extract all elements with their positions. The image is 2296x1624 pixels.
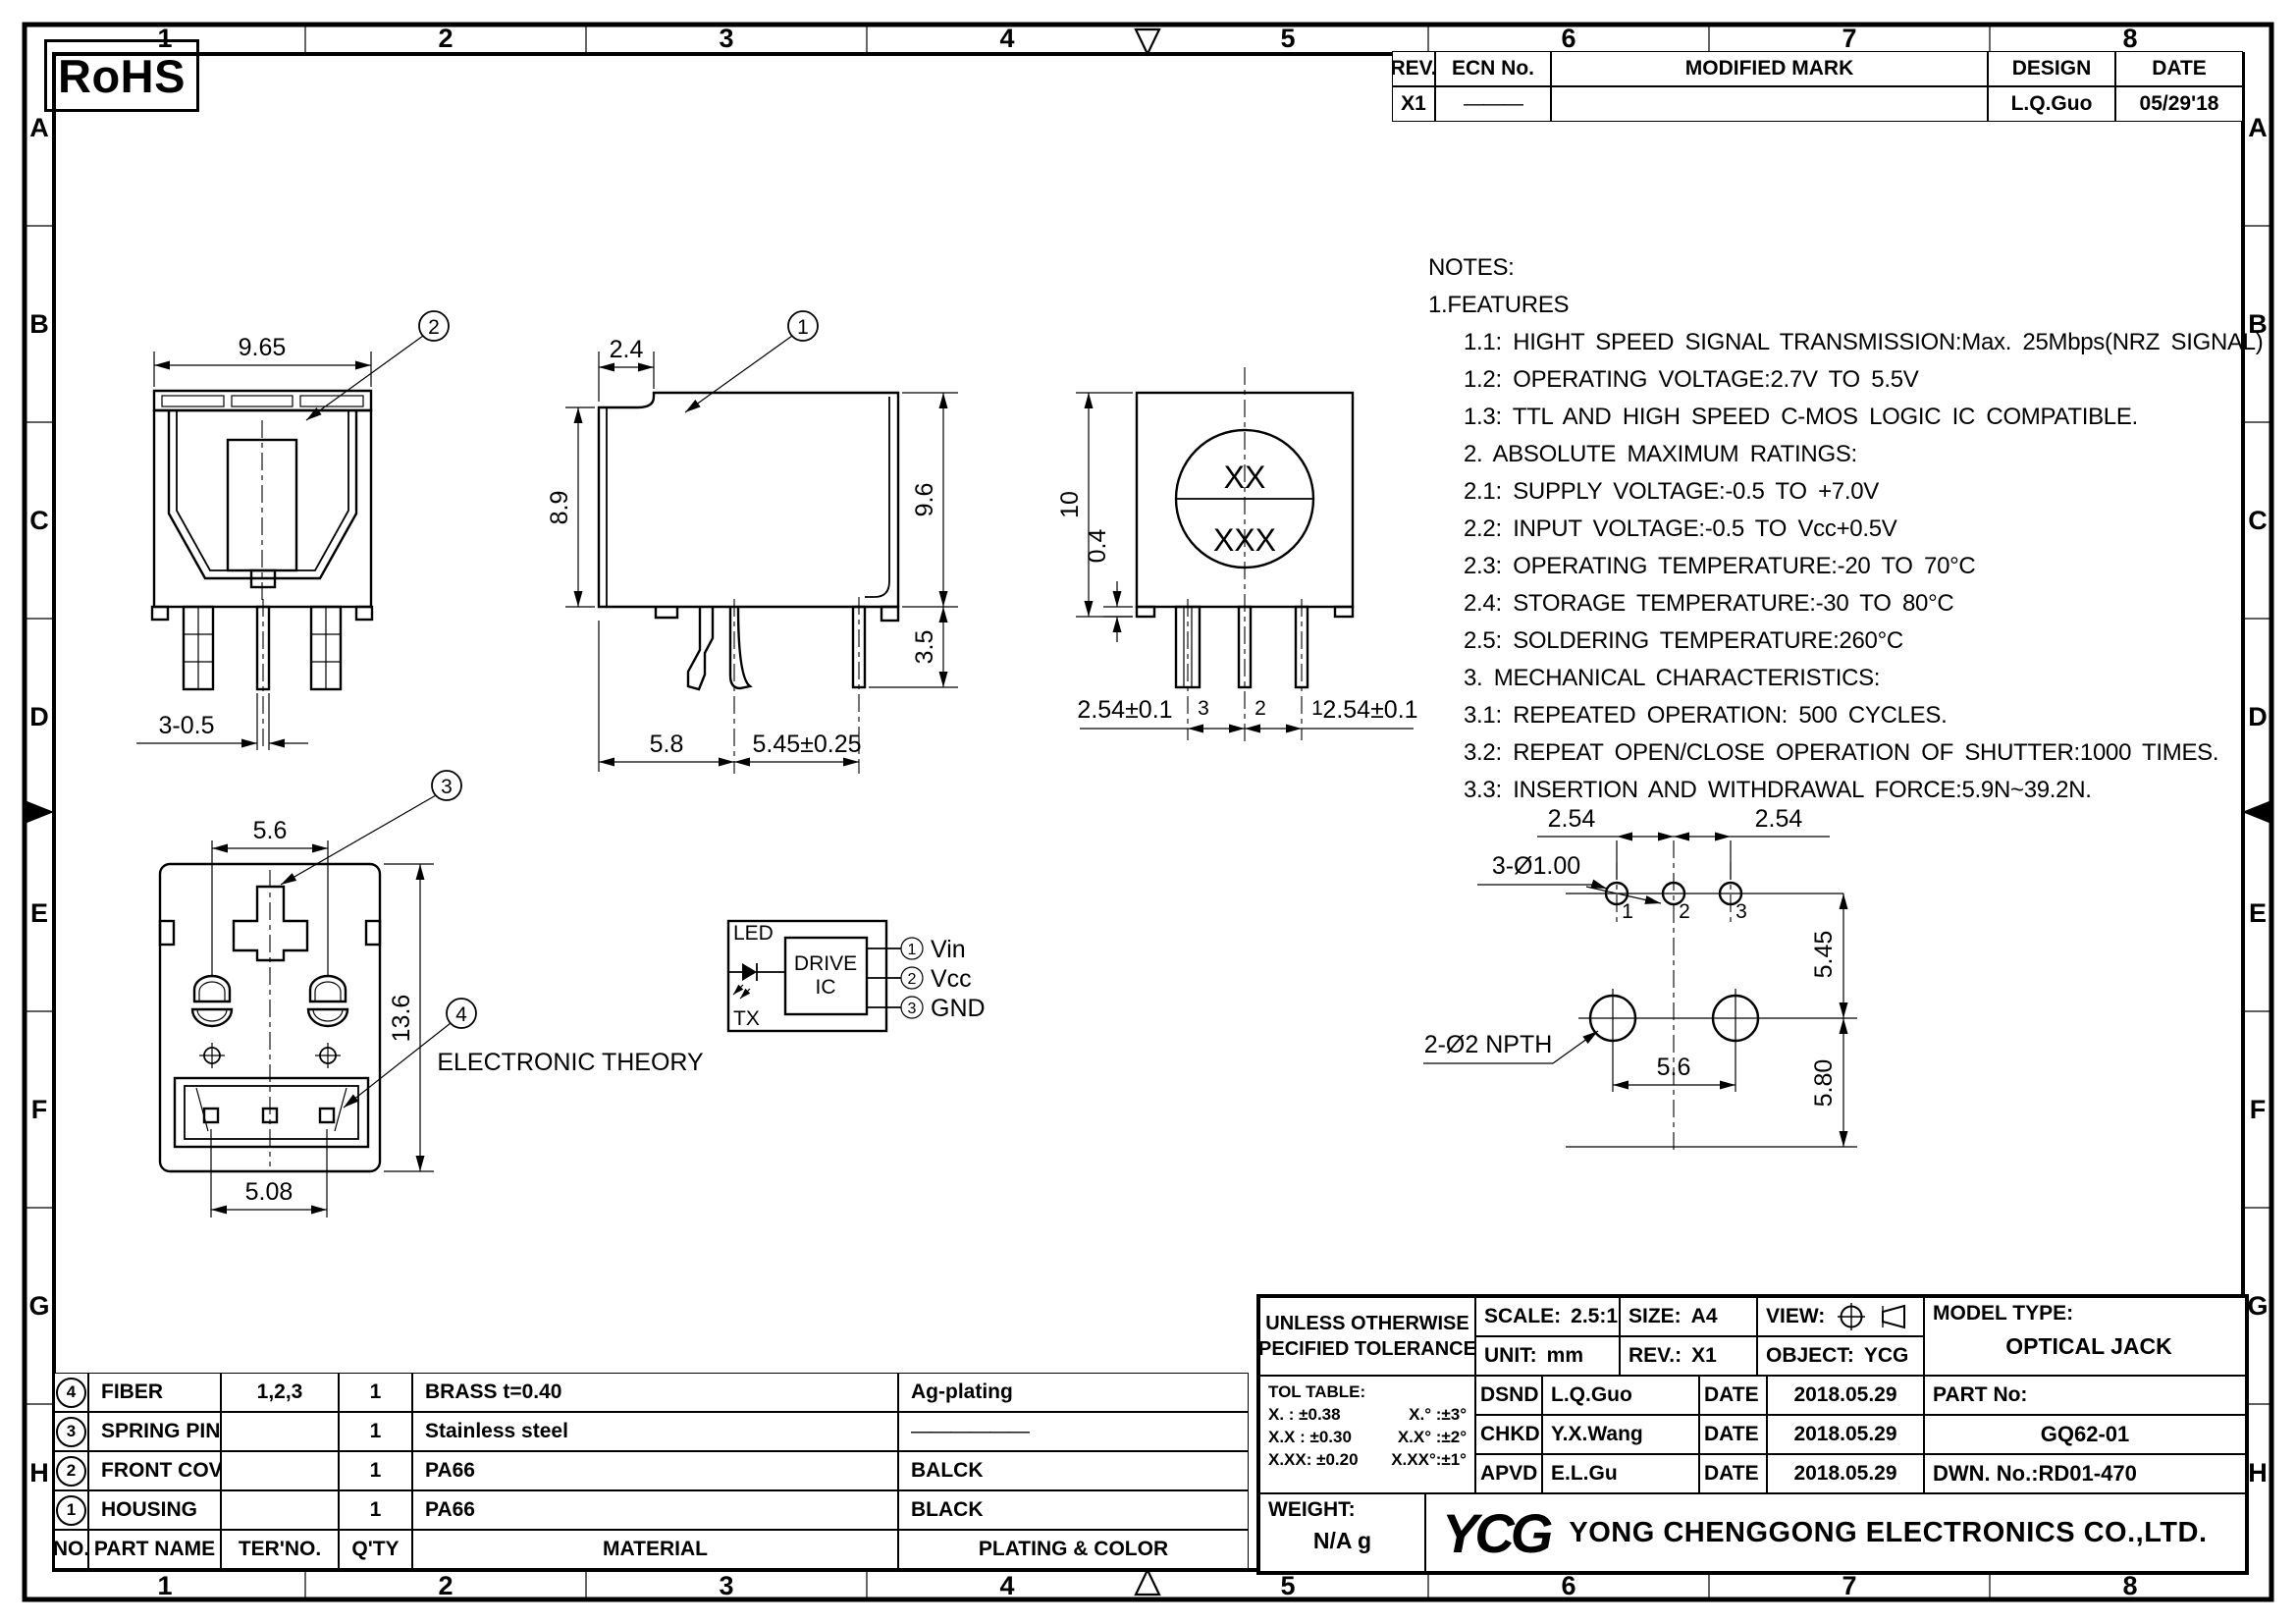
part-material: BRASS t=0.40 (412, 1373, 898, 1412)
size-cell: SIZE: A4 (1620, 1297, 1757, 1336)
dim-rear-standoff: 0.4 (1084, 529, 1111, 564)
rev-value-mark (1551, 86, 1988, 122)
zone-label: 8 (2122, 1571, 2137, 1600)
part-qty: 1 (339, 1412, 412, 1451)
rev-label: REV.: (1629, 1344, 1682, 1368)
apvd-name: E.L.Gu (1542, 1454, 1699, 1493)
note-line: 2.2: INPUT VOLTAGE:-0.5 TO Vcc+0.5V (1428, 511, 2263, 548)
part-name: FIBER (88, 1373, 221, 1412)
part-balloon: 2 (56, 1456, 86, 1487)
hole-label-2: 2 (1679, 900, 1690, 923)
rev-header-date: DATE (2115, 51, 2243, 86)
zone-label: 5 (1280, 24, 1295, 53)
zone-label: B (29, 309, 49, 339)
tol-linear: X.XX: ±0.20 (1268, 1448, 1359, 1471)
drawing-sheet: 1 2 3 4 5 6 7 8 1 2 3 4 5 6 7 8 A B C D … (0, 0, 2296, 1624)
pcb-hole-pattern: 2.54 2.54 3-Ø1.00 1 2 3 5.45 2-Ø2 NPTH 5… (1423, 805, 1857, 1151)
balloon-2-label: 2 (428, 316, 440, 339)
center-mark-top-icon (1136, 29, 1159, 54)
parts-table: 4 FIBER 1,2,3 1 BRASS t=0.40 Ag-plating … (54, 1373, 1249, 1569)
part-material: Stainless steel (412, 1412, 898, 1451)
part-material: PA66 (412, 1451, 898, 1490)
dim-side-body-height: 8.9 (546, 491, 573, 525)
balloon-4-label: 4 (455, 1003, 467, 1026)
zone-label: G (28, 1291, 49, 1321)
zone-label: H (2248, 1458, 2268, 1488)
zone-label: 1 (157, 1571, 172, 1600)
zone-label: A (2248, 113, 2268, 142)
zone-label: E (2249, 898, 2267, 928)
rohs-mark: RoHS (44, 39, 199, 112)
note-line: 2.5: SOLDERING TEMPERATURE:260°C (1428, 623, 2263, 660)
unit-cell: UNIT: mm (1475, 1336, 1620, 1376)
dsnd-role: DSND (1475, 1376, 1542, 1415)
drive-ic-label-line1: DRIVE (794, 952, 857, 975)
dim-pcb-hole-span: 5.6 (1657, 1054, 1691, 1081)
rev-cell: REV.: X1 (1620, 1336, 1757, 1376)
pin-number-3: 3 (908, 1001, 917, 1017)
note-line: 1.3: TTL AND HIGH SPEED C-MOS LOGIC IC C… (1428, 399, 2263, 436)
zone-label: 5 (1280, 1571, 1295, 1600)
label-big-holes: 2-Ø2 NPTH (1424, 1031, 1553, 1058)
weight-label: WEIGHT: (1268, 1498, 1356, 1522)
dim-rear-pitch-left: 2.54±0.1 (1077, 696, 1172, 724)
pin-number-1: 1 (908, 942, 917, 958)
note-line: 3.1: REPEATED OPERATION: 500 CYCLES. (1428, 697, 2263, 734)
pin-number-2: 2 (908, 971, 917, 988)
weight-value: N/A g (1313, 1528, 1371, 1554)
pin-name-vcc: Vcc (931, 965, 972, 993)
part-terno (221, 1412, 339, 1451)
hole-label-1: 1 (1622, 900, 1633, 923)
zone-label: 6 (1561, 1571, 1575, 1600)
tol-linear: X. : ±0.38 (1268, 1403, 1341, 1426)
note-line: 1.1: HIGHT SPEED SIGNAL TRANSMISSION:Max… (1428, 324, 2263, 361)
zone-label: 3 (719, 24, 733, 53)
part-row-no: 4 (54, 1373, 88, 1412)
part-terno (221, 1490, 339, 1530)
model-type-value: OPTICAL JACK (2005, 1333, 2172, 1360)
balloon-1-label: 1 (797, 316, 809, 339)
dim-pcb-pitch-left: 2.54 (1548, 805, 1596, 833)
model-type-cell: MODEL TYPE: OPTICAL JACK (1924, 1297, 2246, 1376)
part-row-no: 3 (54, 1412, 88, 1451)
company-name: YONG CHENGGONG ELECTRONICS CO.,LTD. (1569, 1517, 2207, 1549)
parts-header-part: PART NAME (88, 1530, 221, 1569)
zone-label: 4 (999, 24, 1014, 53)
projection-cone-icon (1872, 1302, 1907, 1331)
note-line: 2.4: STORAGE TEMPERATURE:-30 TO 80°C (1428, 585, 2263, 623)
part-plating: Ag-plating (898, 1373, 1249, 1412)
zone-label: F (31, 1095, 48, 1124)
part-material: PA66 (412, 1490, 898, 1530)
part-qty: 1 (339, 1451, 412, 1490)
unit-label: UNIT: (1484, 1344, 1537, 1368)
view-front: 9.65 2 3-0.5 (136, 311, 449, 751)
part-row-no: 2 (54, 1451, 88, 1490)
part-balloon: 1 (56, 1495, 86, 1526)
dim-side-pin-length: 3.5 (911, 630, 938, 665)
zone-label: F (2250, 1095, 2267, 1124)
chkd-date-label: DATE (1699, 1415, 1767, 1454)
tol-linear: X.X : ±0.30 (1268, 1426, 1352, 1448)
dwn-no: DWN. No.:RD01-470 (1924, 1454, 2246, 1493)
ycg-logo: YCG (1442, 1501, 1549, 1565)
dsnd-date-label: DATE (1699, 1376, 1767, 1415)
rev-header-ecn: ECN No. (1435, 51, 1551, 86)
tol-angular: X.X° :±2° (1398, 1426, 1467, 1448)
chkd-name: Y.X.Wang (1542, 1415, 1699, 1454)
dim-pcb-vertical-top: 5.45 (1810, 931, 1838, 979)
parts-header-plating: PLATING & COLOR (898, 1530, 1249, 1569)
note-line: 2.3: OPERATING TEMPERATURE:-20 TO 70°C (1428, 548, 2263, 585)
view-side: 2.4 1 8.9 9.6 3.5 5.8 5.45±0.25 (546, 311, 958, 774)
rev-value-ecn: ——— (1464, 92, 1522, 116)
drive-ic-label-line2: IC (816, 976, 836, 999)
hole-label-3: 3 (1735, 900, 1747, 923)
pin-label-3: 3 (1198, 697, 1209, 720)
part-no-value: GQ62-01 (1924, 1415, 2246, 1454)
dim-pcb-pitch-right: 2.54 (1755, 805, 1803, 833)
note-line: NOTES: (1428, 249, 2263, 287)
center-mark-left-icon (25, 800, 54, 824)
dim-bottom-height: 13.6 (388, 995, 415, 1043)
rev-value-rev: X1 (1392, 86, 1435, 122)
dim-rear-height: 10 (1056, 491, 1084, 518)
center-mark-bottom-icon (1136, 1570, 1159, 1595)
unit-value: mm (1547, 1344, 1583, 1368)
pin-name-gnd: GND (931, 995, 986, 1022)
dim-bottom-top: 5.6 (253, 817, 288, 844)
zone-label: 6 (1561, 24, 1575, 53)
tolerance-note-line1: UNLESS OTHERWISE (1265, 1311, 1468, 1336)
title-block: UNLESS OTHERWISE SPECIFIED TOLERANCES SC… (1256, 1294, 2249, 1575)
zone-label: E (30, 898, 48, 928)
part-terno: 1,2,3 (221, 1373, 339, 1412)
tol-angular: X.° :±3° (1409, 1403, 1467, 1426)
dim-side-right-span: 5.45±0.25 (752, 731, 861, 758)
parts-header-material: MATERIAL (412, 1530, 898, 1569)
part-plating: —————— (911, 1420, 1029, 1443)
part-balloon: 4 (56, 1378, 86, 1408)
note-line: 3.2: REPEAT OPEN/CLOSE OPERATION OF SHUT… (1428, 734, 2263, 772)
rev-value-date: 05/29'18 (2115, 86, 2243, 122)
revision-table: REV. ECN No. MODIFIED MARK DESIGN DATE X… (1392, 51, 2243, 122)
dim-bottom-bottom: 5.08 (245, 1178, 294, 1206)
part-no-label: PART No: (1924, 1376, 2246, 1415)
rev-header-rev: REV. (1392, 51, 1435, 86)
note-line: 3. MECHANICAL CHARACTERISTICS: (1428, 660, 2263, 697)
apvd-date: 2018.05.29 (1767, 1454, 1924, 1493)
rev-header-design: DESIGN (1988, 51, 2115, 86)
view-rear: XX XXX 10 0.4 2.54±0.1 2.54±0.1 3 2 1 (1056, 367, 1418, 742)
pin-name-vin: Vin (931, 936, 966, 963)
label-small-holes: 3-Ø1.00 (1492, 852, 1580, 880)
chkd-role: CHKD (1475, 1415, 1542, 1454)
zone-label: H (29, 1458, 49, 1488)
model-type-label: MODEL TYPE: (1933, 1302, 2245, 1326)
dim-side-total-height: 9.6 (911, 483, 938, 517)
part-plating: BLACK (898, 1490, 1249, 1530)
dim-front-width: 9.65 (239, 334, 287, 361)
part-qty: 1 (339, 1373, 412, 1412)
zone-label: 2 (438, 24, 453, 53)
object-label: OBJECT: (1766, 1344, 1854, 1368)
view-label: VIEW: (1766, 1305, 1825, 1328)
zone-label: G (2247, 1291, 2268, 1321)
date-code-mark-line2: XXX (1213, 522, 1276, 558)
rev-value: X1 (1691, 1344, 1717, 1368)
zone-label: D (29, 702, 49, 731)
date-code-mark-line1: XX (1224, 460, 1266, 495)
dsnd-date: 2018.05.29 (1767, 1376, 1924, 1415)
note-line: 1.2: OPERATING VOLTAGE:2.7V TO 5.5V (1428, 361, 2263, 399)
part-name: SPRING PIN (88, 1412, 221, 1451)
note-line: 3.3: INSERTION AND WITHDRAWAL FORCE:5.9N… (1428, 772, 2263, 809)
parts-header-ter: TER'NO. (221, 1530, 339, 1569)
scale-label: SCALE: (1484, 1305, 1561, 1328)
zone-label: 7 (1842, 1571, 1856, 1600)
dim-side-notch: 2.4 (610, 336, 644, 363)
note-line: 2. ABSOLUTE MAXIMUM RATINGS: (1428, 436, 2263, 473)
part-name: HOUSING (88, 1490, 221, 1530)
theory-caption: ELECTRONIC THEORY (437, 1049, 704, 1076)
scale-value: 2.5:1 (1571, 1305, 1618, 1328)
pin-label-1: 1 (1311, 697, 1323, 720)
part-row-no: 1 (54, 1490, 88, 1530)
zone-label: 4 (999, 1571, 1014, 1600)
object-value: YCG (1864, 1344, 1909, 1368)
view-bottom: 5.6 13.6 5.08 3 4 (160, 771, 476, 1218)
note-line: 2.1: SUPPLY VOLTAGE:-0.5 TO +7.0V (1428, 473, 2263, 511)
part-balloon: 3 (56, 1417, 86, 1447)
chkd-date: 2018.05.29 (1767, 1415, 1924, 1454)
apvd-role: APVD (1475, 1454, 1542, 1493)
dim-pcb-vertical-bottom: 5.80 (1810, 1059, 1838, 1108)
size-value: A4 (1691, 1305, 1718, 1328)
dsnd-name: L.Q.Guo (1542, 1376, 1699, 1415)
view-cell: VIEW: (1757, 1297, 1924, 1336)
note-line: 1.FEATURES (1428, 287, 2263, 324)
electronic-theory-diagram: LED TX DRIVE IC 1 2 3 Vin Vcc GND ELECTR… (437, 921, 985, 1076)
notes-block: NOTES: 1.FEATURES 1.1: HIGHT SPEED SIGNA… (1428, 249, 2263, 809)
apvd-date-label: DATE (1699, 1454, 1767, 1493)
company-cell: YCG YONG CHENGGONG ELECTRONICS CO.,LTD. (1425, 1493, 2246, 1572)
pin-label-2: 2 (1255, 697, 1266, 720)
rev-value-design: L.Q.Guo (1988, 86, 2115, 122)
parts-header-no: NO. (54, 1530, 88, 1569)
parts-header-qty: Q'TY (339, 1530, 412, 1569)
rev-header-mark: MODIFIED MARK (1551, 51, 1988, 86)
dim-side-left-span: 5.8 (650, 731, 684, 758)
weight-cell: WEIGHT: N/A g (1259, 1493, 1425, 1572)
rohs-label: RoHS (58, 49, 186, 103)
tol-table-title: TOL TABLE: (1268, 1380, 1467, 1403)
tolerance-note: UNLESS OTHERWISE SPECIFIED TOLERANCES (1259, 1297, 1475, 1376)
projection-target-icon (1835, 1302, 1868, 1331)
dim-front-pin: 3-0.5 (159, 712, 215, 739)
part-name: FRONT COVER (88, 1451, 221, 1490)
led-label: LED (733, 922, 774, 945)
tolerance-table: TOL TABLE: X. : ±0.38X.° :±3° X.X : ±0.3… (1259, 1376, 1475, 1493)
dim-rear-pitch-right: 2.54±0.1 (1322, 696, 1417, 724)
scale-cell: SCALE: 2.5:1 (1475, 1297, 1620, 1336)
balloon-3-label: 3 (441, 776, 453, 798)
led-diode-icon (742, 963, 757, 981)
object-cell: OBJECT: YCG (1757, 1336, 1924, 1376)
tol-angular: X.XX°:±1° (1391, 1448, 1467, 1471)
zone-label: A (29, 113, 49, 142)
part-plating: BALCK (898, 1451, 1249, 1490)
part-qty: 1 (339, 1490, 412, 1530)
tx-label: TX (733, 1007, 760, 1030)
zone-label: 2 (438, 1571, 453, 1600)
size-label: SIZE: (1629, 1305, 1682, 1328)
tolerance-note-line2: SPECIFIED TOLERANCES (1259, 1336, 1475, 1362)
zone-label: 8 (2122, 24, 2137, 53)
zone-label: 3 (719, 1571, 733, 1600)
zone-label: C (29, 506, 49, 535)
zone-label: 7 (1842, 24, 1856, 53)
part-terno (221, 1451, 339, 1490)
